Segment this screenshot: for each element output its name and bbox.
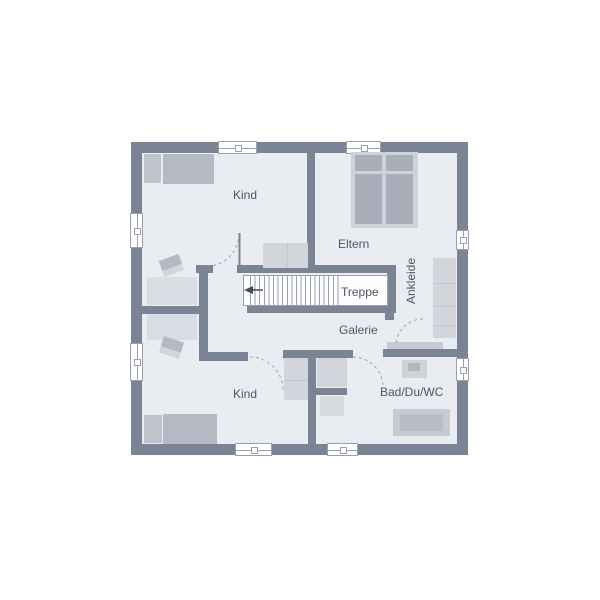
wall-hallway-left bbox=[199, 265, 208, 361]
window-top-left bbox=[218, 141, 257, 154]
window-left-lower bbox=[130, 343, 143, 381]
room-label-kind-top: Kind bbox=[233, 189, 257, 202]
room-label-eltern: Eltern bbox=[338, 238, 369, 251]
bed-mattress-eltern-left bbox=[355, 174, 382, 224]
bed-mattress-eltern-right bbox=[386, 174, 413, 224]
window-right-upper bbox=[456, 230, 469, 250]
room-label-galerie: Galerie bbox=[339, 324, 378, 337]
bed-pillow-kind-bottom bbox=[144, 415, 162, 443]
wall-hallway-bottom bbox=[199, 352, 248, 361]
wall-closet-top bbox=[283, 350, 353, 358]
bed-mattress-kind-top bbox=[163, 154, 214, 184]
wall-bad-top bbox=[383, 349, 457, 357]
bed-pillow-kind-top bbox=[144, 154, 161, 183]
room-label-kind-bottom: Kind bbox=[233, 388, 257, 401]
wall-bad-stub bbox=[316, 388, 347, 395]
shower-fixture bbox=[320, 396, 344, 416]
wall-kind-kind-divider bbox=[142, 306, 199, 314]
window-right-lower bbox=[456, 358, 469, 381]
stair-treads bbox=[250, 276, 339, 305]
wall-stair-top bbox=[237, 265, 396, 273]
wall-ankleide-door-stub bbox=[385, 313, 394, 320]
window-left-upper bbox=[130, 213, 143, 248]
bed-mattress-kind-bottom bbox=[163, 414, 217, 444]
room-label-treppe: Treppe bbox=[341, 286, 379, 299]
window-bottom-left bbox=[235, 443, 272, 456]
exterior-wall-right bbox=[457, 142, 468, 455]
desk-kind-bottom bbox=[147, 314, 197, 340]
room-label-ankleide: Ankleide bbox=[405, 251, 419, 311]
exterior-wall-bottom bbox=[131, 444, 468, 455]
exterior-wall-left bbox=[131, 142, 142, 455]
closet-left bbox=[284, 358, 308, 400]
window-bottom-right bbox=[327, 443, 358, 456]
dresser-ankleide bbox=[387, 342, 443, 349]
wall-kind-eltern-divider bbox=[307, 153, 315, 265]
closet-right bbox=[317, 358, 347, 387]
wardrobe-ankleide bbox=[433, 258, 456, 338]
bathtub bbox=[393, 409, 450, 436]
wall-stair-bottom bbox=[247, 305, 396, 313]
sink-bad bbox=[402, 360, 427, 378]
bed-pillow-eltern-right bbox=[386, 155, 413, 171]
room-label-bad: Bad/Du/WC bbox=[380, 386, 443, 399]
floor-plan: Kind Eltern Treppe Galerie Ankleide Kind… bbox=[0, 0, 600, 600]
desk-kind-top bbox=[147, 277, 197, 305]
dresser-kind-top bbox=[263, 243, 308, 268]
wall-closet-vertical bbox=[308, 358, 316, 444]
bed-pillow-eltern-left bbox=[355, 155, 382, 171]
